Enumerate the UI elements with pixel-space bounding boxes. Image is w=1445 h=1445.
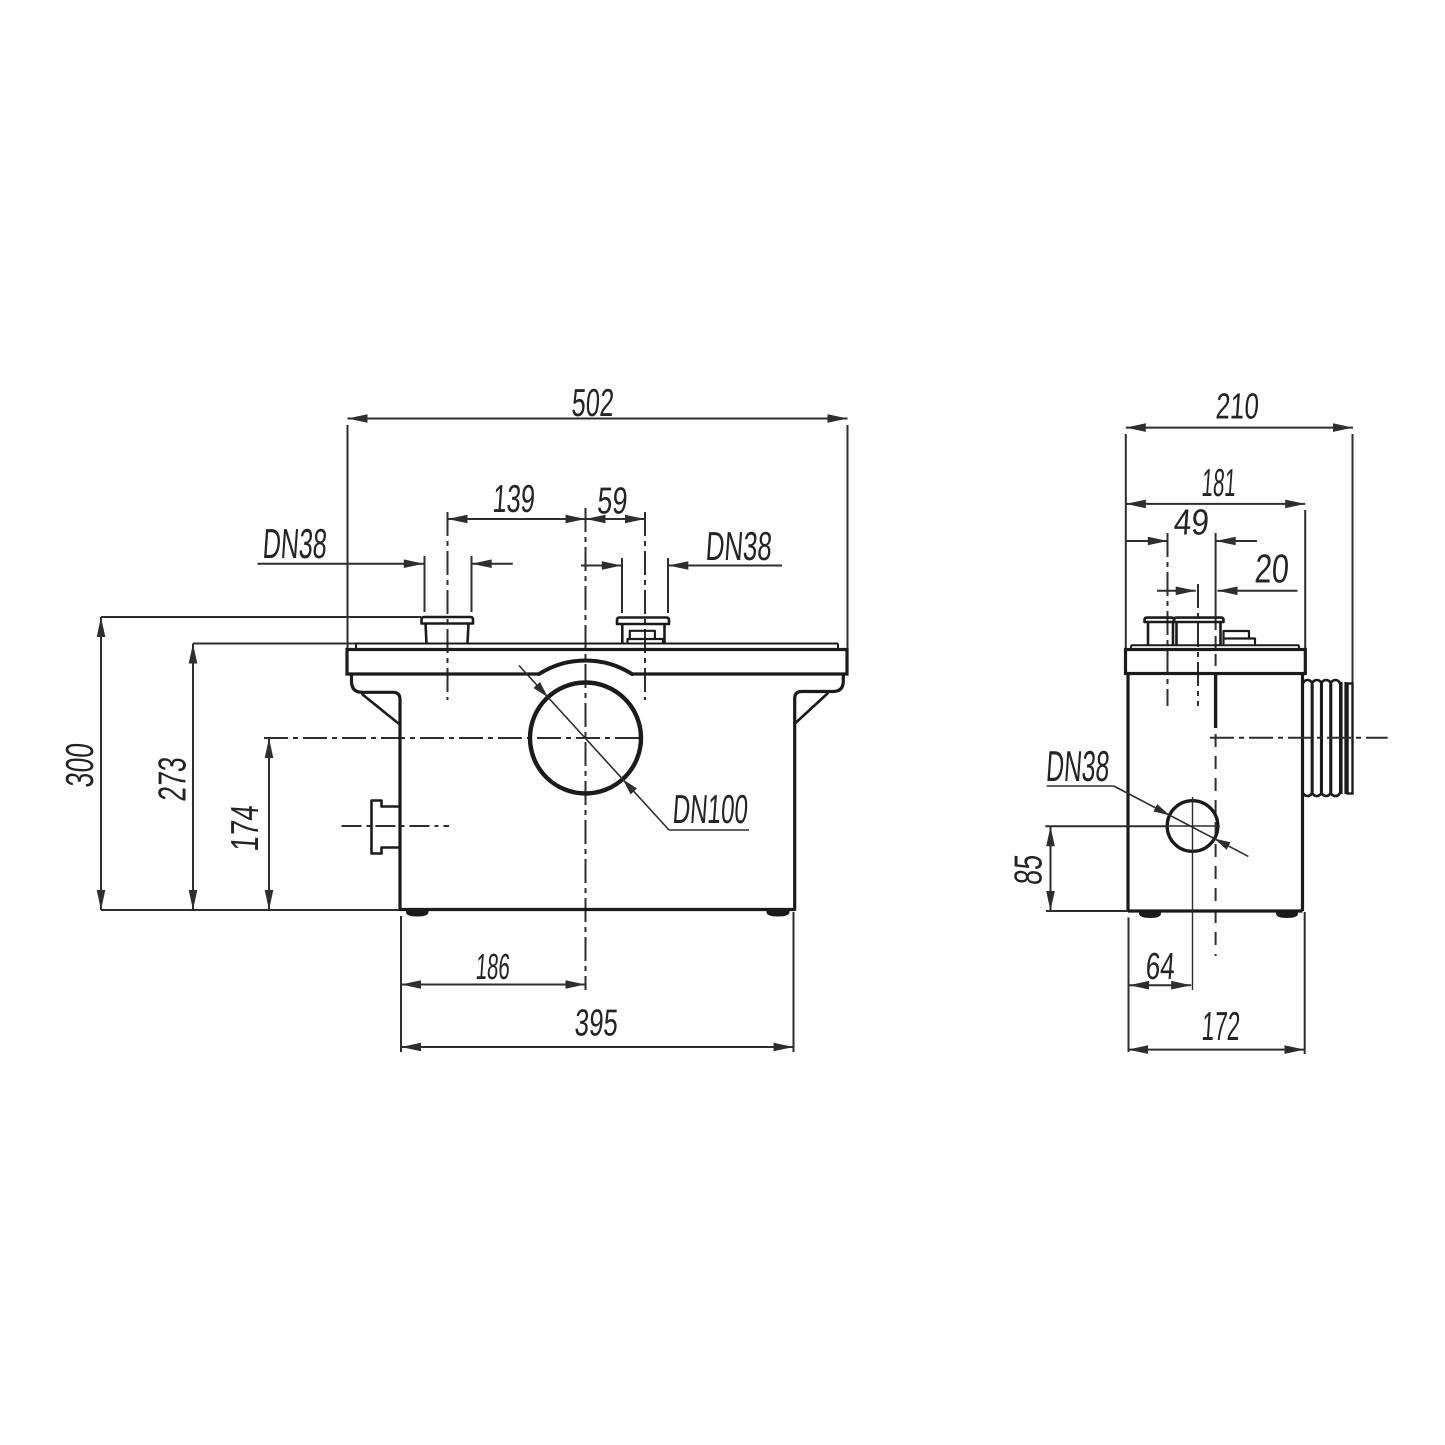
svg-text:186: 186: [475, 946, 512, 987]
svg-text:502: 502: [570, 382, 615, 425]
svg-text:59: 59: [596, 480, 629, 522]
svg-text:49: 49: [1173, 502, 1211, 543]
svg-text:DN38: DN38: [261, 520, 328, 567]
svg-text:64: 64: [1144, 945, 1176, 987]
svg-text:85: 85: [1008, 853, 1051, 886]
svg-text:139: 139: [491, 478, 536, 521]
svg-text:395: 395: [573, 1002, 619, 1044]
svg-text:20: 20: [1253, 546, 1290, 592]
svg-text:174: 174: [224, 804, 267, 853]
svg-text:DN38: DN38: [704, 523, 773, 569]
svg-text:172: 172: [1200, 1003, 1241, 1049]
svg-text:300: 300: [59, 742, 102, 789]
svg-text:273: 273: [152, 756, 195, 803]
svg-text:DN38: DN38: [1045, 743, 1111, 791]
svg-text:DN100: DN100: [671, 786, 749, 832]
svg-text:181: 181: [1200, 462, 1237, 505]
svg-text:210: 210: [1215, 386, 1261, 427]
